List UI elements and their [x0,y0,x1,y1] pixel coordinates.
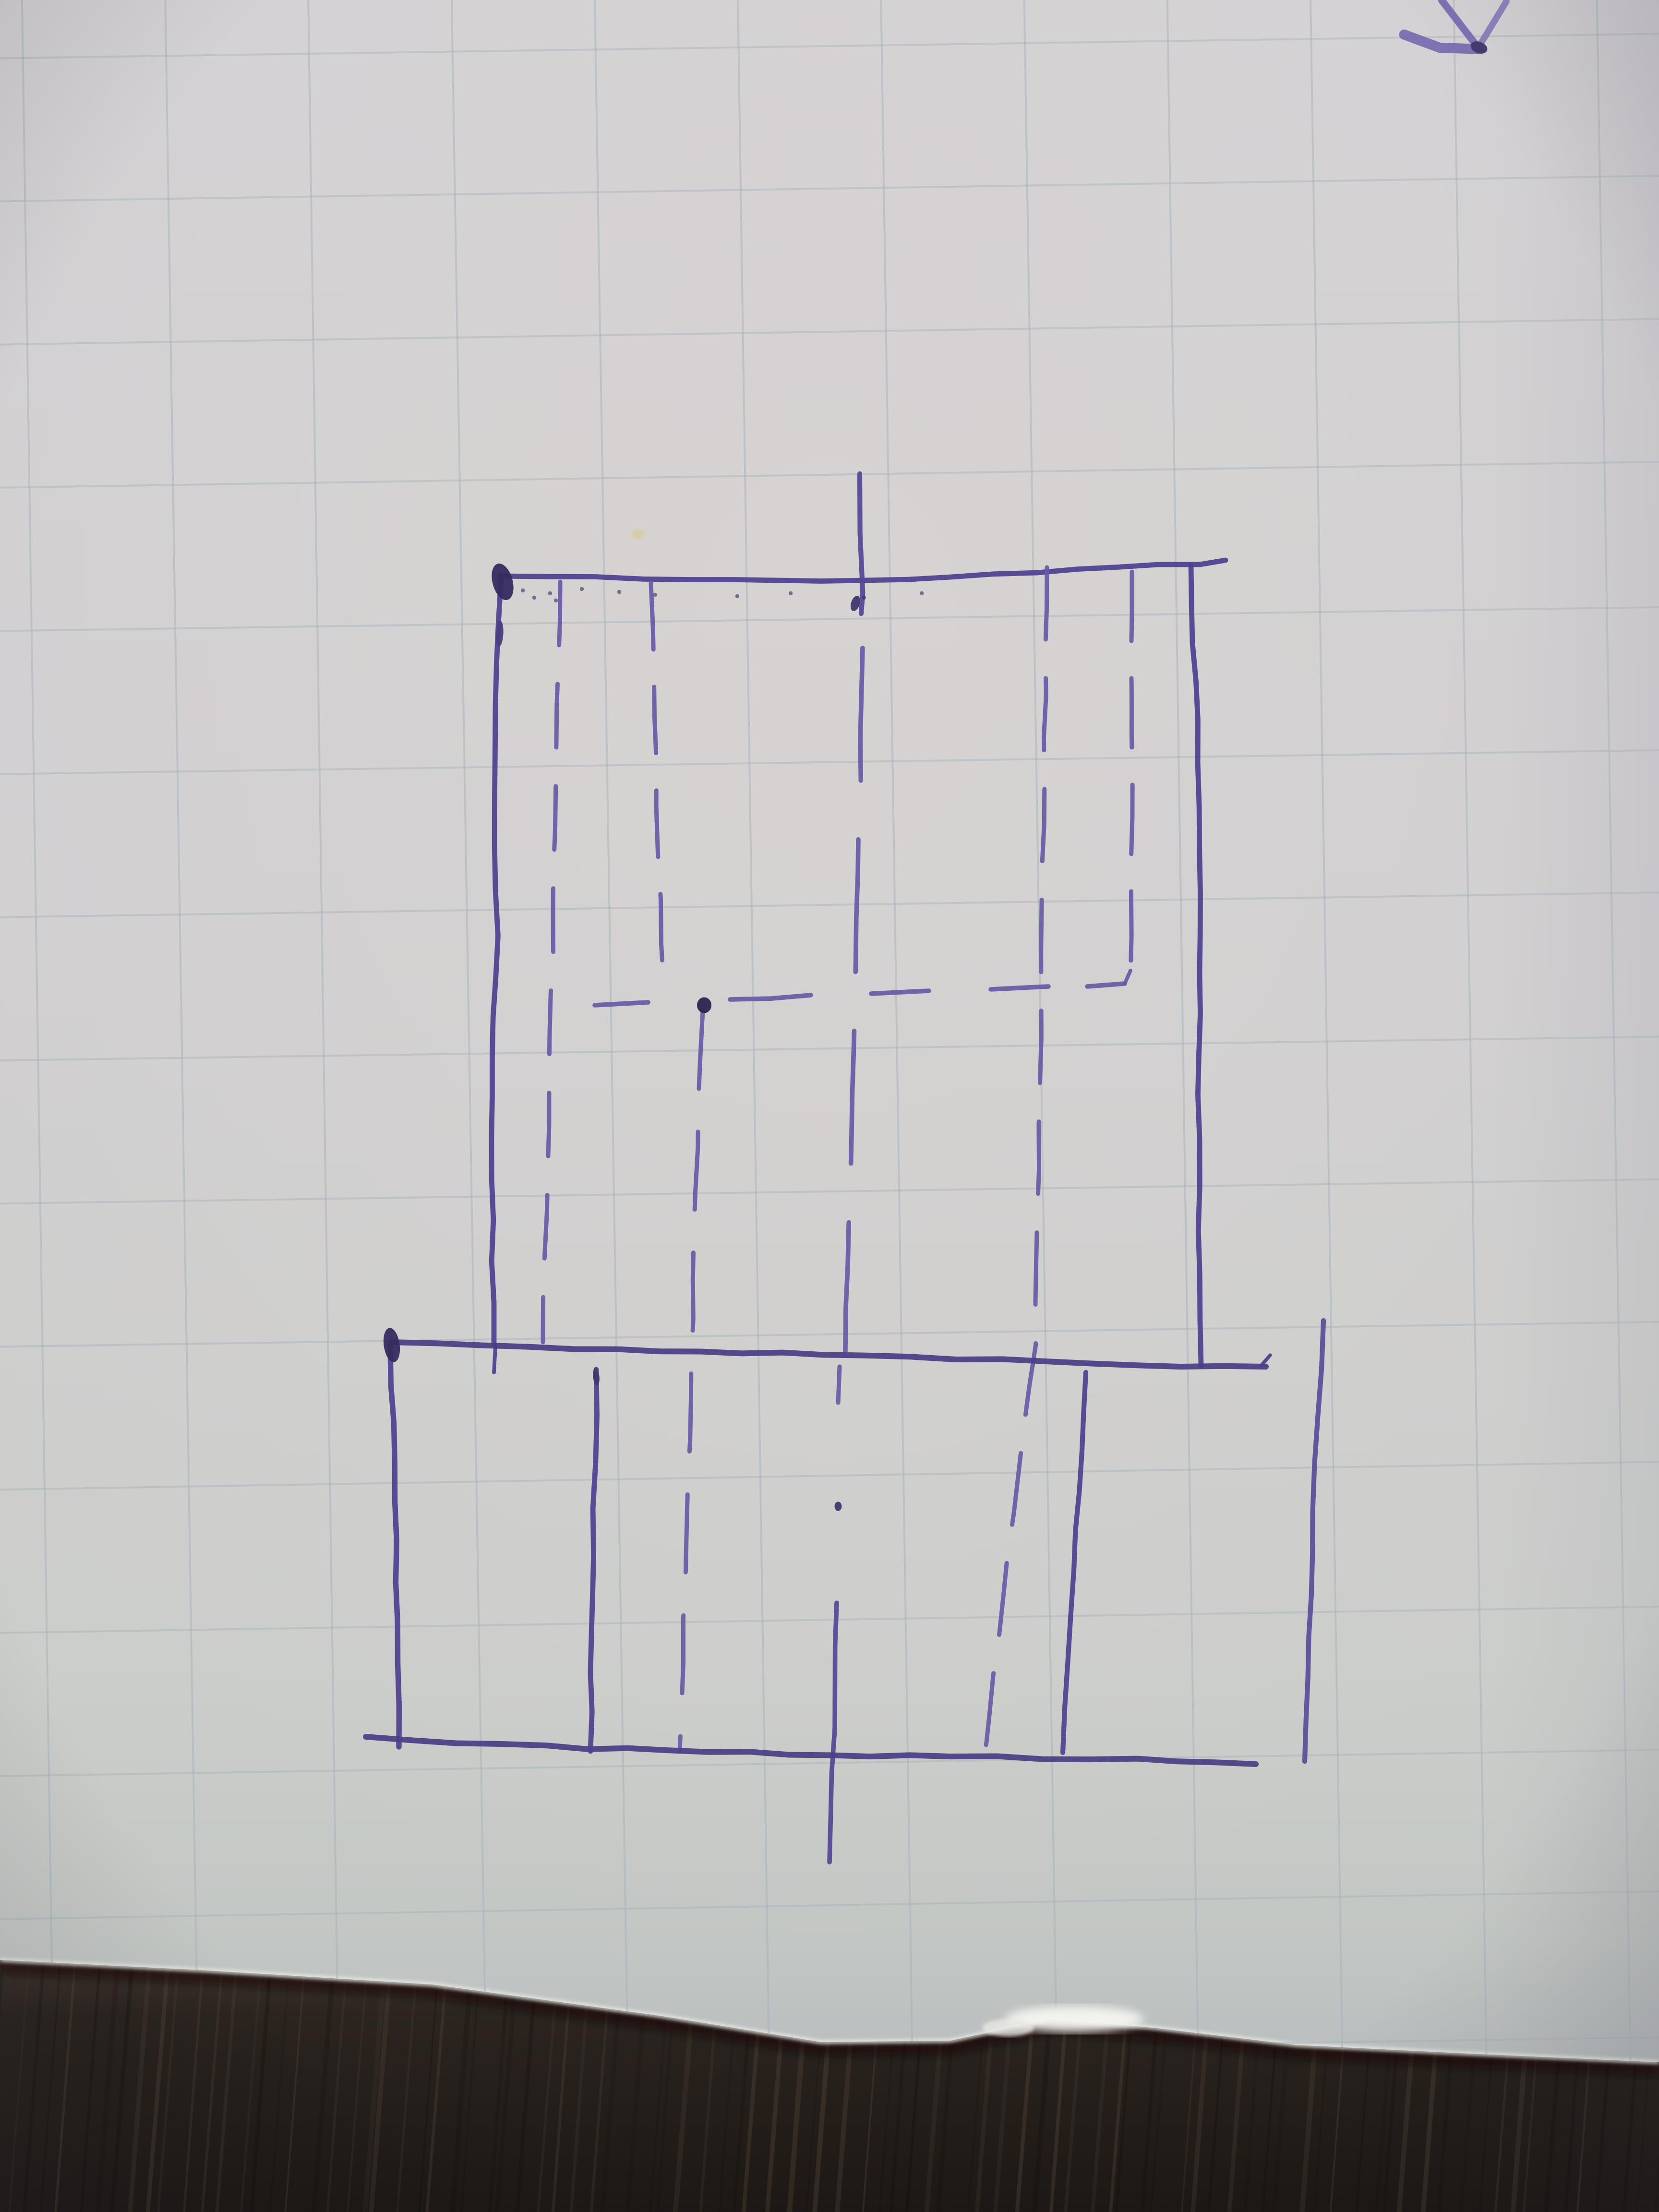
scene-svg [0,0,1659,2212]
lighting-vignette [0,0,1659,2212]
vignette-overlay [0,0,1659,2212]
photo-of-graph-paper-sketch [0,0,1659,2212]
